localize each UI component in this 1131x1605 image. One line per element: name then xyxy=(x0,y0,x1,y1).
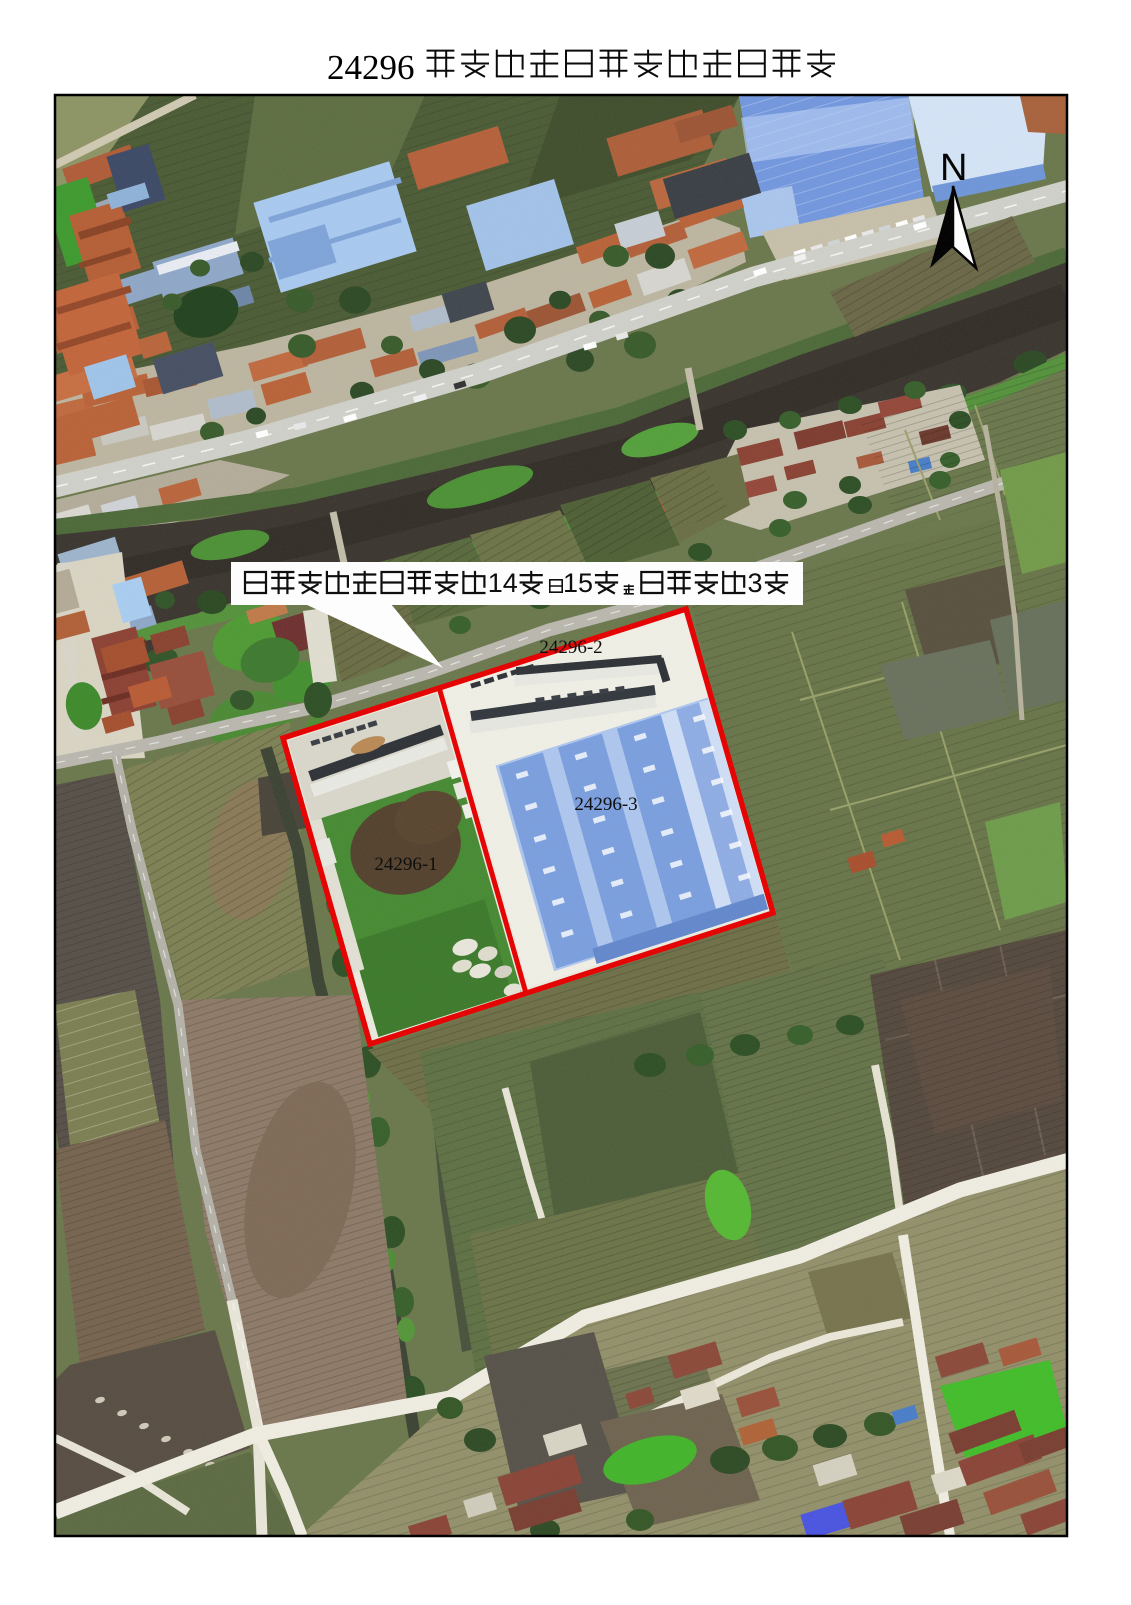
svg-text:24296: 24296 xyxy=(327,48,415,87)
